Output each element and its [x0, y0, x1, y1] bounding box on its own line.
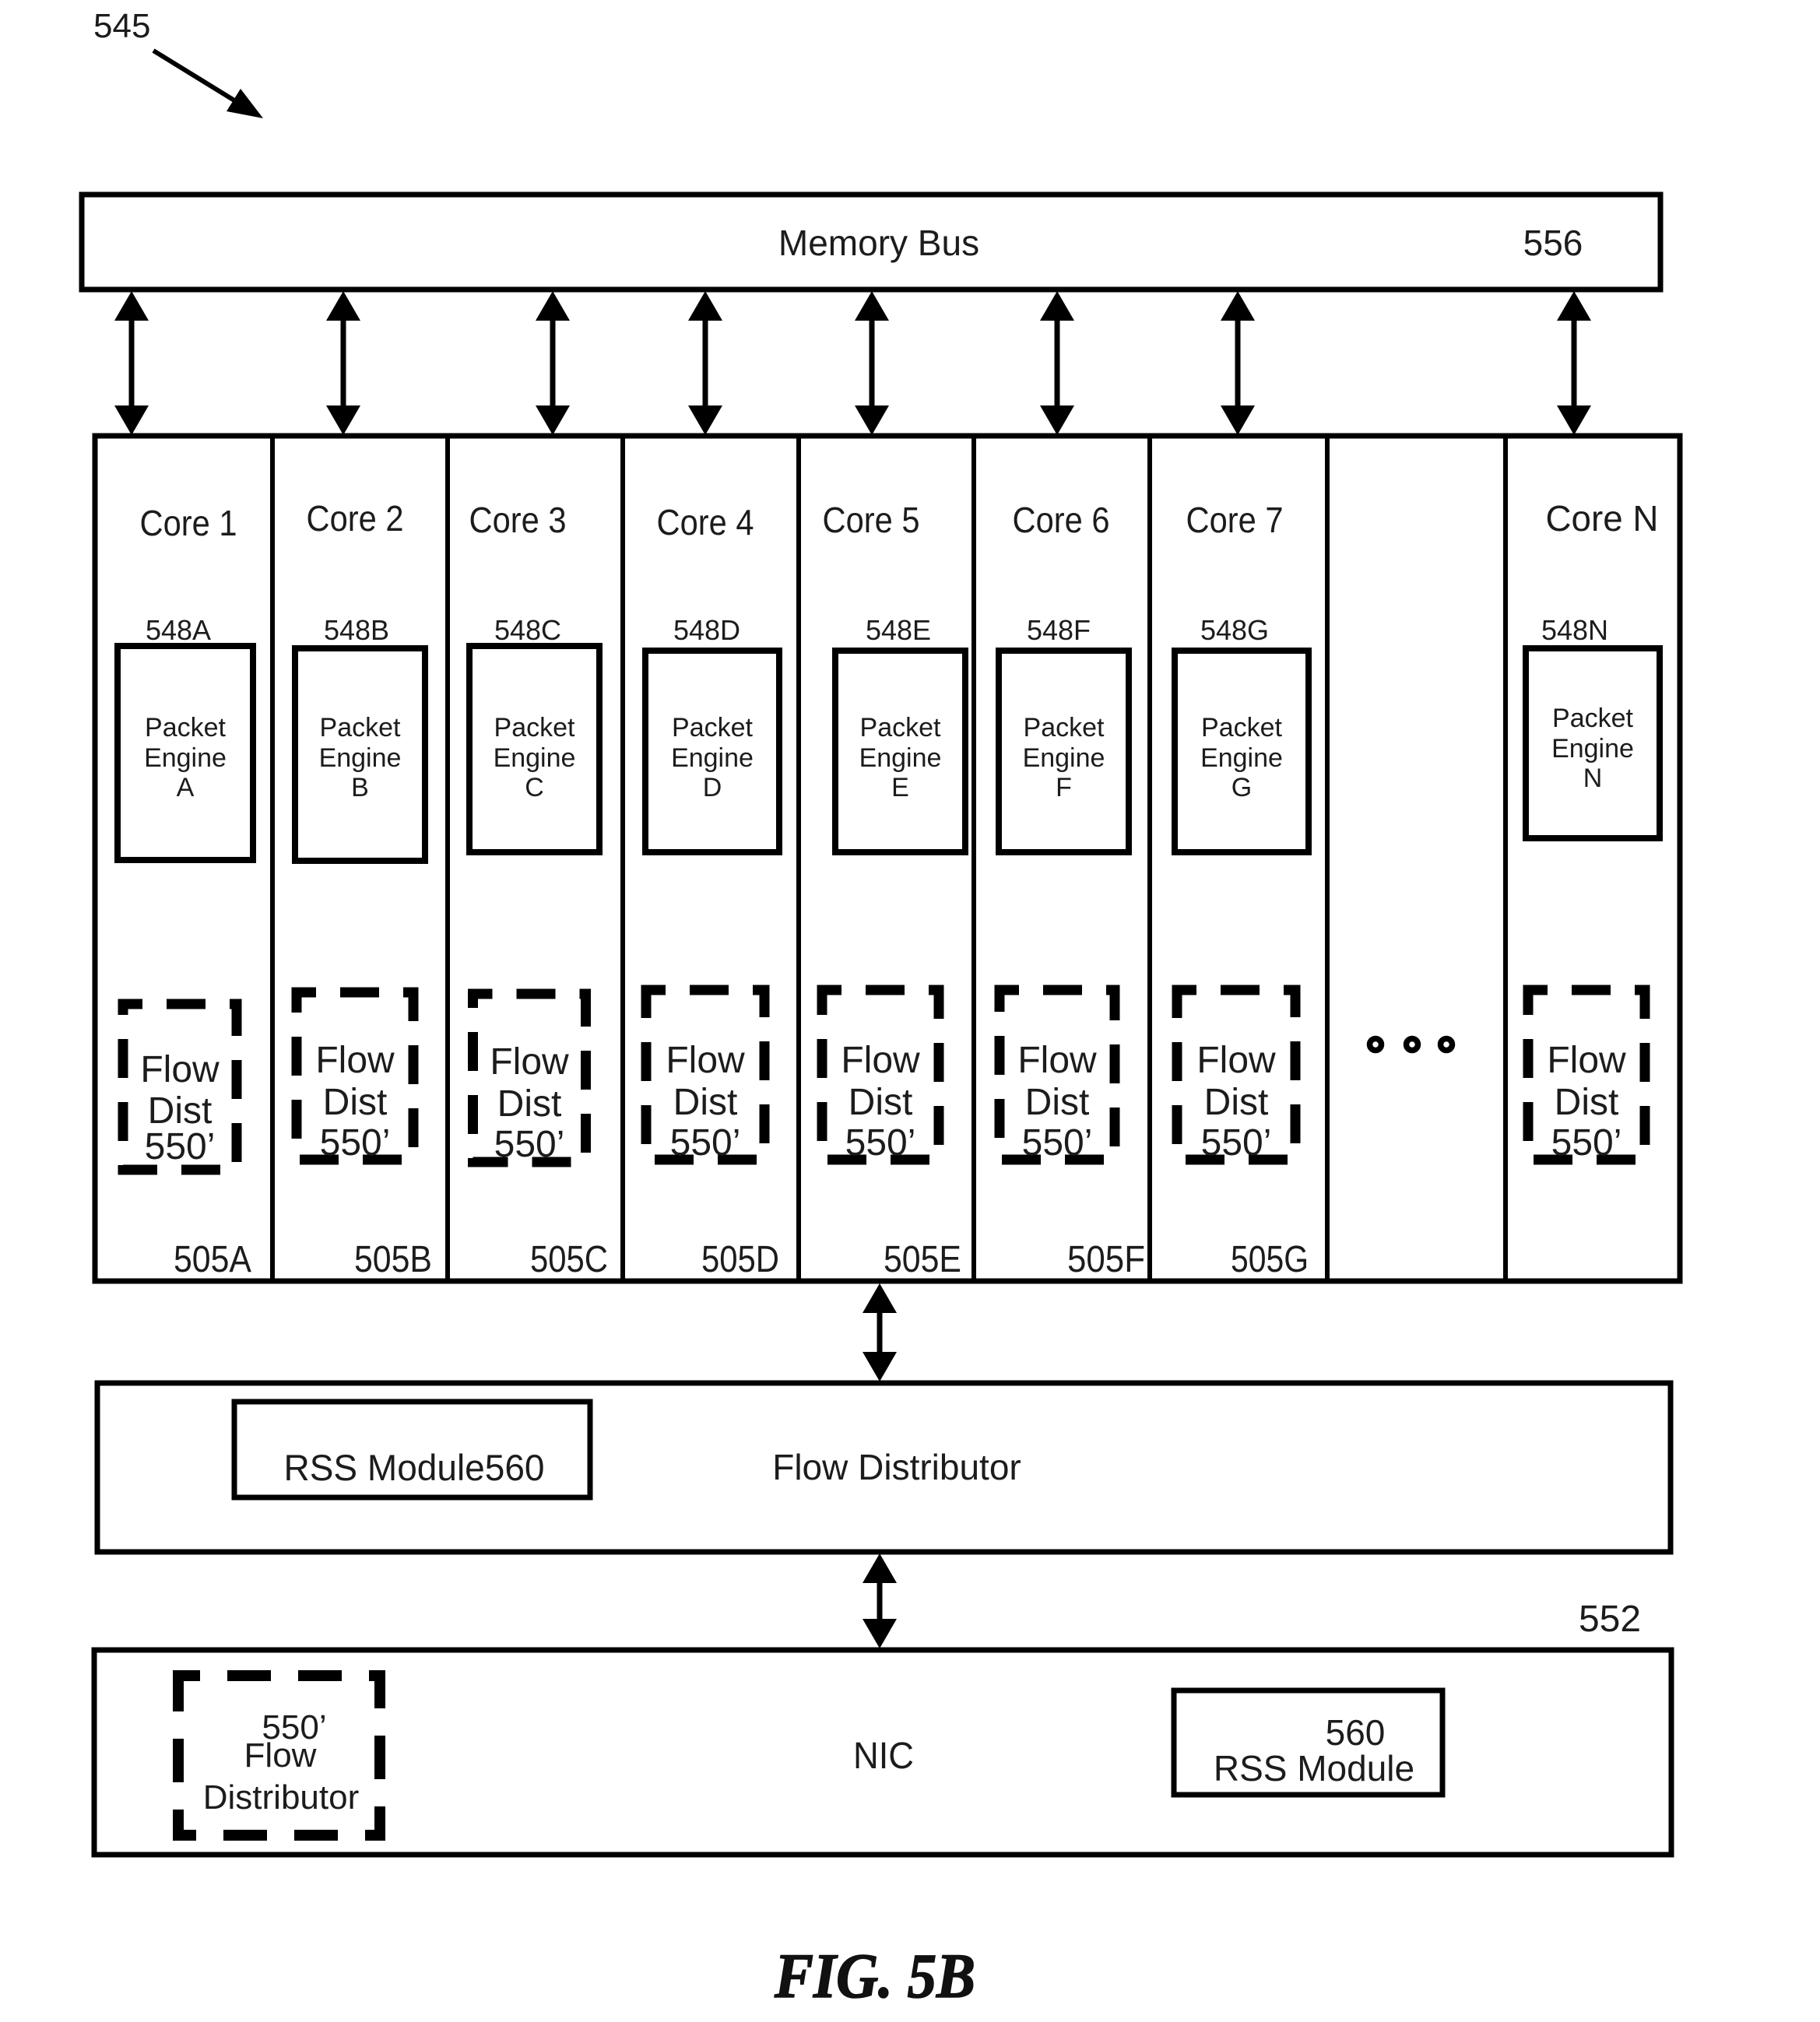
svg-text:Core 6: Core 6: [1013, 500, 1110, 540]
svg-text:505F: 505F: [1067, 1239, 1145, 1280]
svg-text:550’: 550’: [145, 1126, 216, 1167]
svg-text:Flow: Flow: [490, 1041, 569, 1083]
svg-text:Core N: Core N: [1546, 498, 1659, 539]
svg-text:N: N: [1583, 764, 1603, 793]
svg-text:Core 3: Core 3: [469, 500, 567, 540]
svg-text:Packet: Packet: [1201, 713, 1282, 742]
svg-text:Flow Distributor: Flow Distributor: [772, 1447, 1021, 1487]
svg-text:Distributor: Distributor: [203, 1778, 360, 1817]
svg-text:Engine: Engine: [494, 743, 576, 773]
svg-text:548F: 548F: [1027, 614, 1091, 646]
svg-text:550’: 550’: [845, 1122, 916, 1164]
svg-text:Core 5: Core 5: [823, 500, 920, 540]
svg-text:RSS Module560: RSS Module560: [284, 1447, 545, 1488]
svg-text:545: 545: [93, 7, 150, 45]
svg-text:548N: 548N: [1541, 614, 1608, 646]
svg-text:548G: 548G: [1200, 614, 1269, 646]
svg-text:Flow: Flow: [1196, 1040, 1276, 1081]
svg-text:D: D: [703, 773, 722, 802]
svg-text:548C: 548C: [494, 614, 561, 646]
svg-text:550’: 550’: [1551, 1122, 1622, 1164]
svg-text:Core 1: Core 1: [140, 503, 237, 543]
svg-text:G: G: [1231, 773, 1252, 802]
svg-text:548E: 548E: [866, 614, 931, 646]
svg-text:Memory Bus: Memory Bus: [778, 223, 979, 263]
svg-text:FIG. 5B: FIG. 5B: [774, 1940, 975, 2011]
svg-text:Engine: Engine: [319, 743, 402, 773]
svg-text:550’: 550’: [320, 1122, 391, 1164]
svg-text:505D: 505D: [701, 1239, 779, 1280]
svg-text:Packet: Packet: [1552, 704, 1633, 733]
svg-text:Core 4: Core 4: [657, 502, 754, 542]
svg-text:A: A: [177, 773, 195, 802]
svg-text:548D: 548D: [673, 614, 740, 646]
svg-text:505G: 505G: [1231, 1239, 1309, 1280]
svg-text:505C: 505C: [530, 1239, 608, 1280]
svg-text:556: 556: [1523, 223, 1583, 263]
svg-text:Engine: Engine: [1023, 743, 1105, 773]
svg-text:550’: 550’: [670, 1122, 741, 1164]
svg-text:505B: 505B: [354, 1239, 432, 1280]
svg-text:552: 552: [1579, 1599, 1641, 1640]
svg-text:Packet: Packet: [145, 713, 226, 742]
svg-text:B: B: [351, 773, 369, 802]
svg-text:560: 560: [1326, 1712, 1386, 1753]
svg-text:Flow: Flow: [244, 1736, 317, 1775]
svg-text:Flow: Flow: [315, 1040, 395, 1081]
svg-text:Dist: Dist: [1025, 1082, 1090, 1123]
svg-text:548B: 548B: [324, 614, 389, 646]
svg-text:Dist: Dist: [497, 1083, 562, 1125]
svg-text:Packet: Packet: [860, 713, 941, 742]
svg-text:505A: 505A: [174, 1239, 251, 1280]
svg-text:Engine: Engine: [671, 743, 754, 773]
svg-text:Flow: Flow: [1017, 1040, 1097, 1081]
svg-text:Engine: Engine: [859, 743, 942, 773]
svg-text:Dist: Dist: [1555, 1082, 1619, 1123]
svg-text:F: F: [1056, 773, 1072, 802]
svg-text:Dist: Dist: [1204, 1082, 1269, 1123]
svg-text:NIC: NIC: [853, 1736, 914, 1777]
svg-text:Engine: Engine: [144, 743, 227, 773]
svg-text:Flow: Flow: [140, 1049, 220, 1090]
svg-text:Packet: Packet: [1024, 713, 1105, 742]
svg-text:550’: 550’: [1022, 1122, 1093, 1164]
svg-text:Engine: Engine: [1551, 734, 1634, 764]
svg-text:Flow: Flow: [666, 1040, 745, 1081]
svg-text:Packet: Packet: [320, 713, 401, 742]
svg-text:Dist: Dist: [323, 1082, 388, 1123]
svg-text:505E: 505E: [884, 1239, 961, 1280]
svg-text:Flow: Flow: [841, 1040, 920, 1081]
svg-text:Core 7: Core 7: [1186, 500, 1284, 540]
svg-text:Engine: Engine: [1200, 743, 1283, 773]
svg-text:RSS Module: RSS Module: [1214, 1748, 1414, 1789]
svg-text:550’: 550’: [1201, 1122, 1272, 1164]
svg-text:548A: 548A: [146, 614, 211, 646]
svg-text:Flow: Flow: [1547, 1040, 1626, 1081]
svg-text:Packet: Packet: [494, 713, 575, 742]
svg-text:Packet: Packet: [672, 713, 753, 742]
svg-text:550’: 550’: [494, 1124, 565, 1165]
svg-text:E: E: [891, 773, 909, 802]
svg-text:Dist: Dist: [849, 1082, 913, 1123]
svg-text:Core 2: Core 2: [307, 498, 404, 539]
svg-text:C: C: [525, 773, 544, 802]
svg-text:Dist: Dist: [673, 1082, 738, 1123]
